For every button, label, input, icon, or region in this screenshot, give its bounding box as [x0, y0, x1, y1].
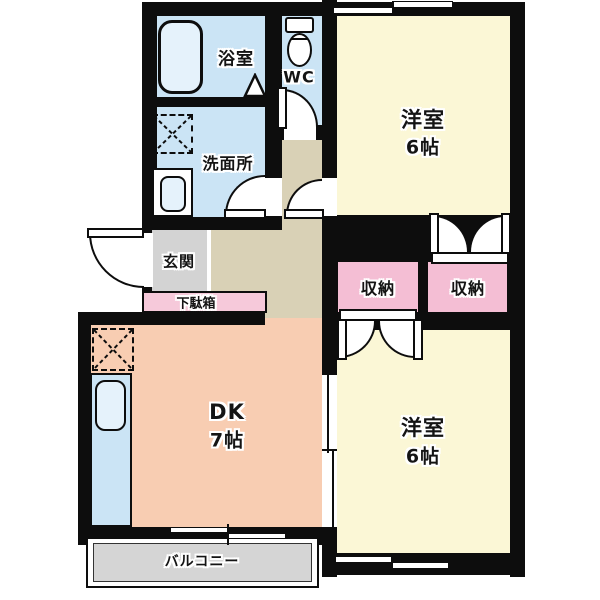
- wall-right: [510, 2, 525, 577]
- entry-door-leaf: [87, 228, 144, 238]
- dk-size: 7帖: [210, 426, 244, 453]
- storage-right-label: 収納: [451, 275, 485, 299]
- bathtub: [158, 20, 203, 94]
- bedroom-upper-window-slat-1: [333, 7, 394, 14]
- bedroom-upper-window-tick: [392, 1, 394, 15]
- bedroom-lower-size: 6帖: [406, 442, 440, 469]
- closet-lower-door-left-leaf: [337, 319, 347, 360]
- balcony-window-tick: [227, 524, 229, 545]
- entry-door-swing: [89, 233, 144, 288]
- bedroom-upper-label: 洋室: [401, 104, 445, 134]
- wall-bath-washroom-divider: [142, 97, 282, 107]
- toilet-icon: [283, 17, 317, 69]
- wall-dk-top: [78, 312, 265, 325]
- balcony-label: バルコニー: [165, 551, 240, 571]
- bedroom-lower-label: 洋室: [401, 412, 445, 442]
- wc-door-leaf: [277, 87, 287, 129]
- bedroom-lower-window-tick: [391, 555, 393, 571]
- wc-label: WC: [283, 68, 314, 87]
- storage-right-threshold: [431, 252, 509, 264]
- bedroom-upper-size: 6帖: [406, 133, 440, 160]
- washroom-label: 洗面所: [202, 150, 253, 174]
- bathroom-label: 浴室: [218, 45, 254, 70]
- dk-bedroom-sliding-door: [322, 375, 337, 527]
- floor-plan: 浴室 WC 洗面所 玄関 下駄箱 洋室 6帖 収納 収納 DK 7帖 洋室 6帖…: [0, 0, 600, 600]
- storage-left-label: 収納: [361, 275, 395, 299]
- kitchen-sink: [95, 380, 126, 431]
- bedroom-upper-door-opening: [322, 178, 337, 216]
- entrance-step-edge: [207, 230, 211, 292]
- balcony-window-slat-1: [170, 527, 228, 533]
- wc-door-opening: [284, 125, 316, 140]
- bedroom-lower-window-slat-2: [392, 562, 449, 569]
- storage-left-threshold: [339, 309, 417, 321]
- bedroom-lower-window-slat-1: [335, 556, 394, 563]
- shoe-cabinet-label: 下駄箱: [176, 293, 215, 312]
- balcony-window-slat-2: [227, 533, 286, 539]
- washroom-door-leaf: [224, 209, 266, 219]
- sliding-door-rail-2: [332, 450, 334, 527]
- refrigerator-space: [92, 328, 134, 371]
- dk-label: DK: [209, 400, 245, 424]
- closet-upper-door-left-leaf: [429, 213, 439, 254]
- entrance-label: 玄関: [163, 251, 195, 272]
- washing-machine-space: [152, 114, 193, 154]
- closet-upper-door-right-leaf: [501, 213, 511, 254]
- washroom-door-opening: [265, 178, 282, 216]
- sliding-door-tick: [322, 449, 337, 451]
- closet-lower-door-right-leaf: [413, 319, 423, 360]
- bedroom-upper-door-leaf: [284, 209, 324, 219]
- sliding-door-rail-1: [327, 375, 329, 453]
- washroom-sink-bowl: [160, 176, 186, 212]
- bedroom-upper-window-slat-2: [392, 1, 453, 8]
- bath-door-triangle-icon: [243, 73, 267, 98]
